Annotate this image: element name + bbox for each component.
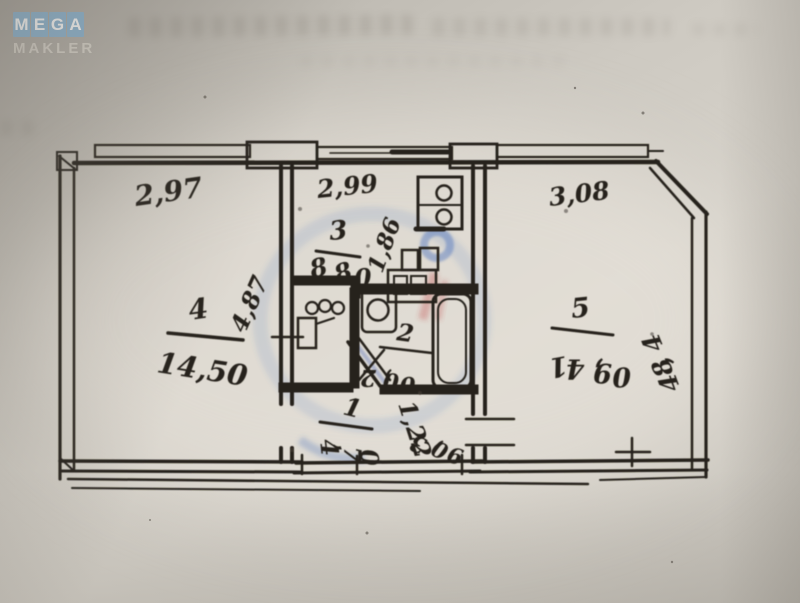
- window-room4: [95, 145, 250, 157]
- window-room5: [497, 145, 648, 157]
- bottom-edge-line: [72, 488, 420, 491]
- top-wall: [74, 162, 658, 163]
- label-underlines: [168, 251, 613, 429]
- dim-kitchen-width: 2,99: [315, 169, 380, 204]
- dim-room5-width: 3,08: [547, 176, 611, 212]
- room4-number: 4: [186, 292, 210, 327]
- scanned-floorplan-photo: M E G A MAKLER: [0, 0, 800, 603]
- chamfer-wall-outer: [656, 161, 707, 214]
- bottom-wall: [472, 460, 708, 462]
- bathroom-area: 2,00: [355, 361, 420, 401]
- room5-number: 5: [569, 292, 591, 325]
- dim-hallway-b: 3,09: [406, 427, 467, 470]
- bathroom-number: 2: [394, 317, 416, 348]
- dim-room4-width: 2,97: [131, 171, 205, 213]
- bottom-edge-line: [68, 479, 588, 484]
- hallway-area: 4,70: [310, 427, 390, 475]
- bottom-wall: [60, 461, 302, 462]
- bathtub-icon: [433, 294, 471, 388]
- kitchen-number: 3: [328, 216, 349, 247]
- wc-hall-wall: [279, 383, 353, 392]
- bottom-edge-line: [600, 477, 706, 480]
- toilet-icon: [298, 300, 344, 348]
- bottom-wall: [470, 470, 707, 472]
- washbasin-icon: [362, 288, 396, 332]
- room5-area: 14,90: [541, 346, 637, 397]
- bottom-wall: [60, 471, 300, 472]
- floorplan-drawing: 2,97 2,99 3,08 4 14,50 4,87 3 8,80 1,86 …: [0, 0, 800, 603]
- room4-area: 14,50: [155, 345, 250, 393]
- dim-room5-depth: 4,84: [636, 329, 687, 397]
- bottom-wall: [294, 471, 480, 473]
